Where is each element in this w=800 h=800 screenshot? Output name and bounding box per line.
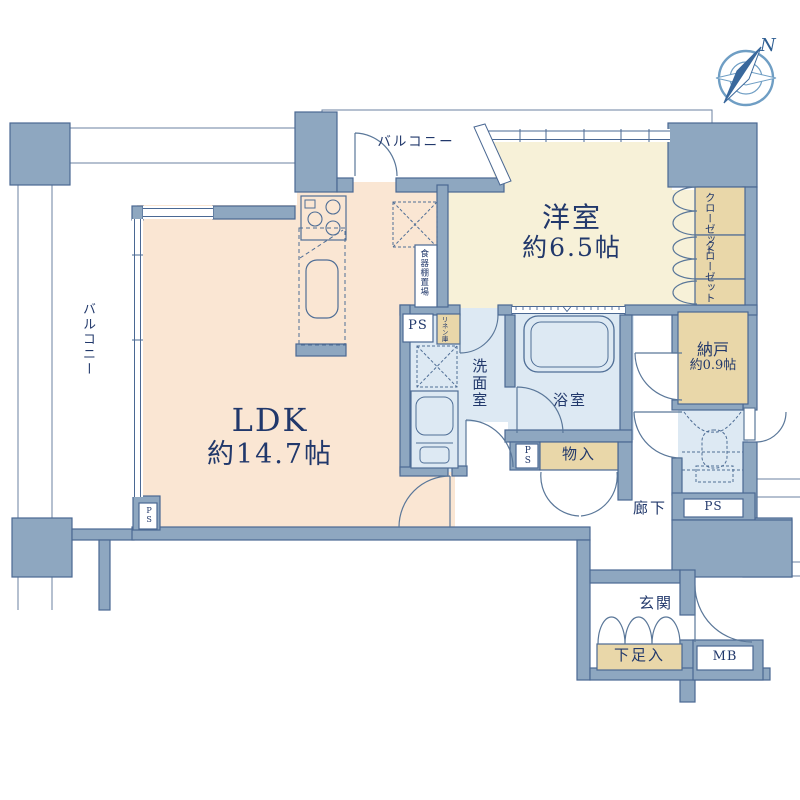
shoe-box-doors: [598, 617, 680, 644]
ldk-area: 約14.7帖: [170, 439, 370, 470]
north-label: N: [760, 36, 776, 57]
closet-end-box: [695, 279, 745, 305]
floor-plan: LDK 約14.7帖 洋室 約6.5帖 納戸 約0.9帖 クローゼット クローゼ…: [0, 0, 800, 800]
mb-label: MB: [697, 650, 753, 665]
bathroom-label: 浴室: [536, 392, 604, 409]
storage-room-door: [635, 353, 682, 400]
mono-ire-doors: [541, 472, 617, 516]
floor-plan-drawing: [0, 0, 800, 800]
toilet-floor: [678, 405, 748, 497]
storage-room-label: 納戸 約0.9帖: [676, 341, 750, 374]
ldk-name: LDK: [170, 402, 370, 439]
mono-ire-label: 物入: [540, 446, 618, 463]
closet-upper-label: クローゼット: [701, 192, 718, 232]
toilet-door: [634, 412, 682, 458]
hallway-label: 廊下: [614, 500, 686, 517]
balcony-left-label: バルコニー: [79, 302, 94, 402]
ps-kitchen-label: PS: [403, 319, 433, 334]
washbasin: [411, 391, 458, 468]
ps-toilet-label: PS: [684, 500, 743, 514]
shoe-box-label: 下足入: [597, 647, 682, 664]
washroom-door: [466, 420, 513, 467]
bathtub: [524, 316, 614, 372]
balcony-top-label: バルコニー: [366, 135, 466, 151]
dish-shelf-label: 食器棚置場: [418, 249, 428, 305]
storage-room-name: 納戸: [676, 341, 750, 359]
western-room-area: 約6.5帖: [472, 234, 672, 263]
entrance-label: 玄関: [620, 595, 692, 612]
entrance-door: [695, 585, 752, 642]
pillar-bottom-left: [12, 518, 72, 577]
pillar-top-left: [10, 123, 70, 185]
western-room-label: 洋室 約6.5帖: [472, 202, 672, 263]
ps-ldk-label: PS: [144, 506, 154, 528]
washroom-label: 洗面室: [470, 358, 487, 414]
closet-lower-label: クローゼット: [701, 240, 718, 280]
toilet-window-arc: [757, 412, 786, 442]
linen-label: リネン庫: [439, 316, 449, 343]
ldk-label: LDK 約14.7帖: [170, 402, 370, 470]
western-room-name: 洋室: [472, 202, 672, 234]
ps-hall-label: PS: [522, 446, 533, 467]
toilet-window-leaf: [744, 408, 755, 440]
storage-room-area: 約0.9帖: [676, 359, 750, 374]
